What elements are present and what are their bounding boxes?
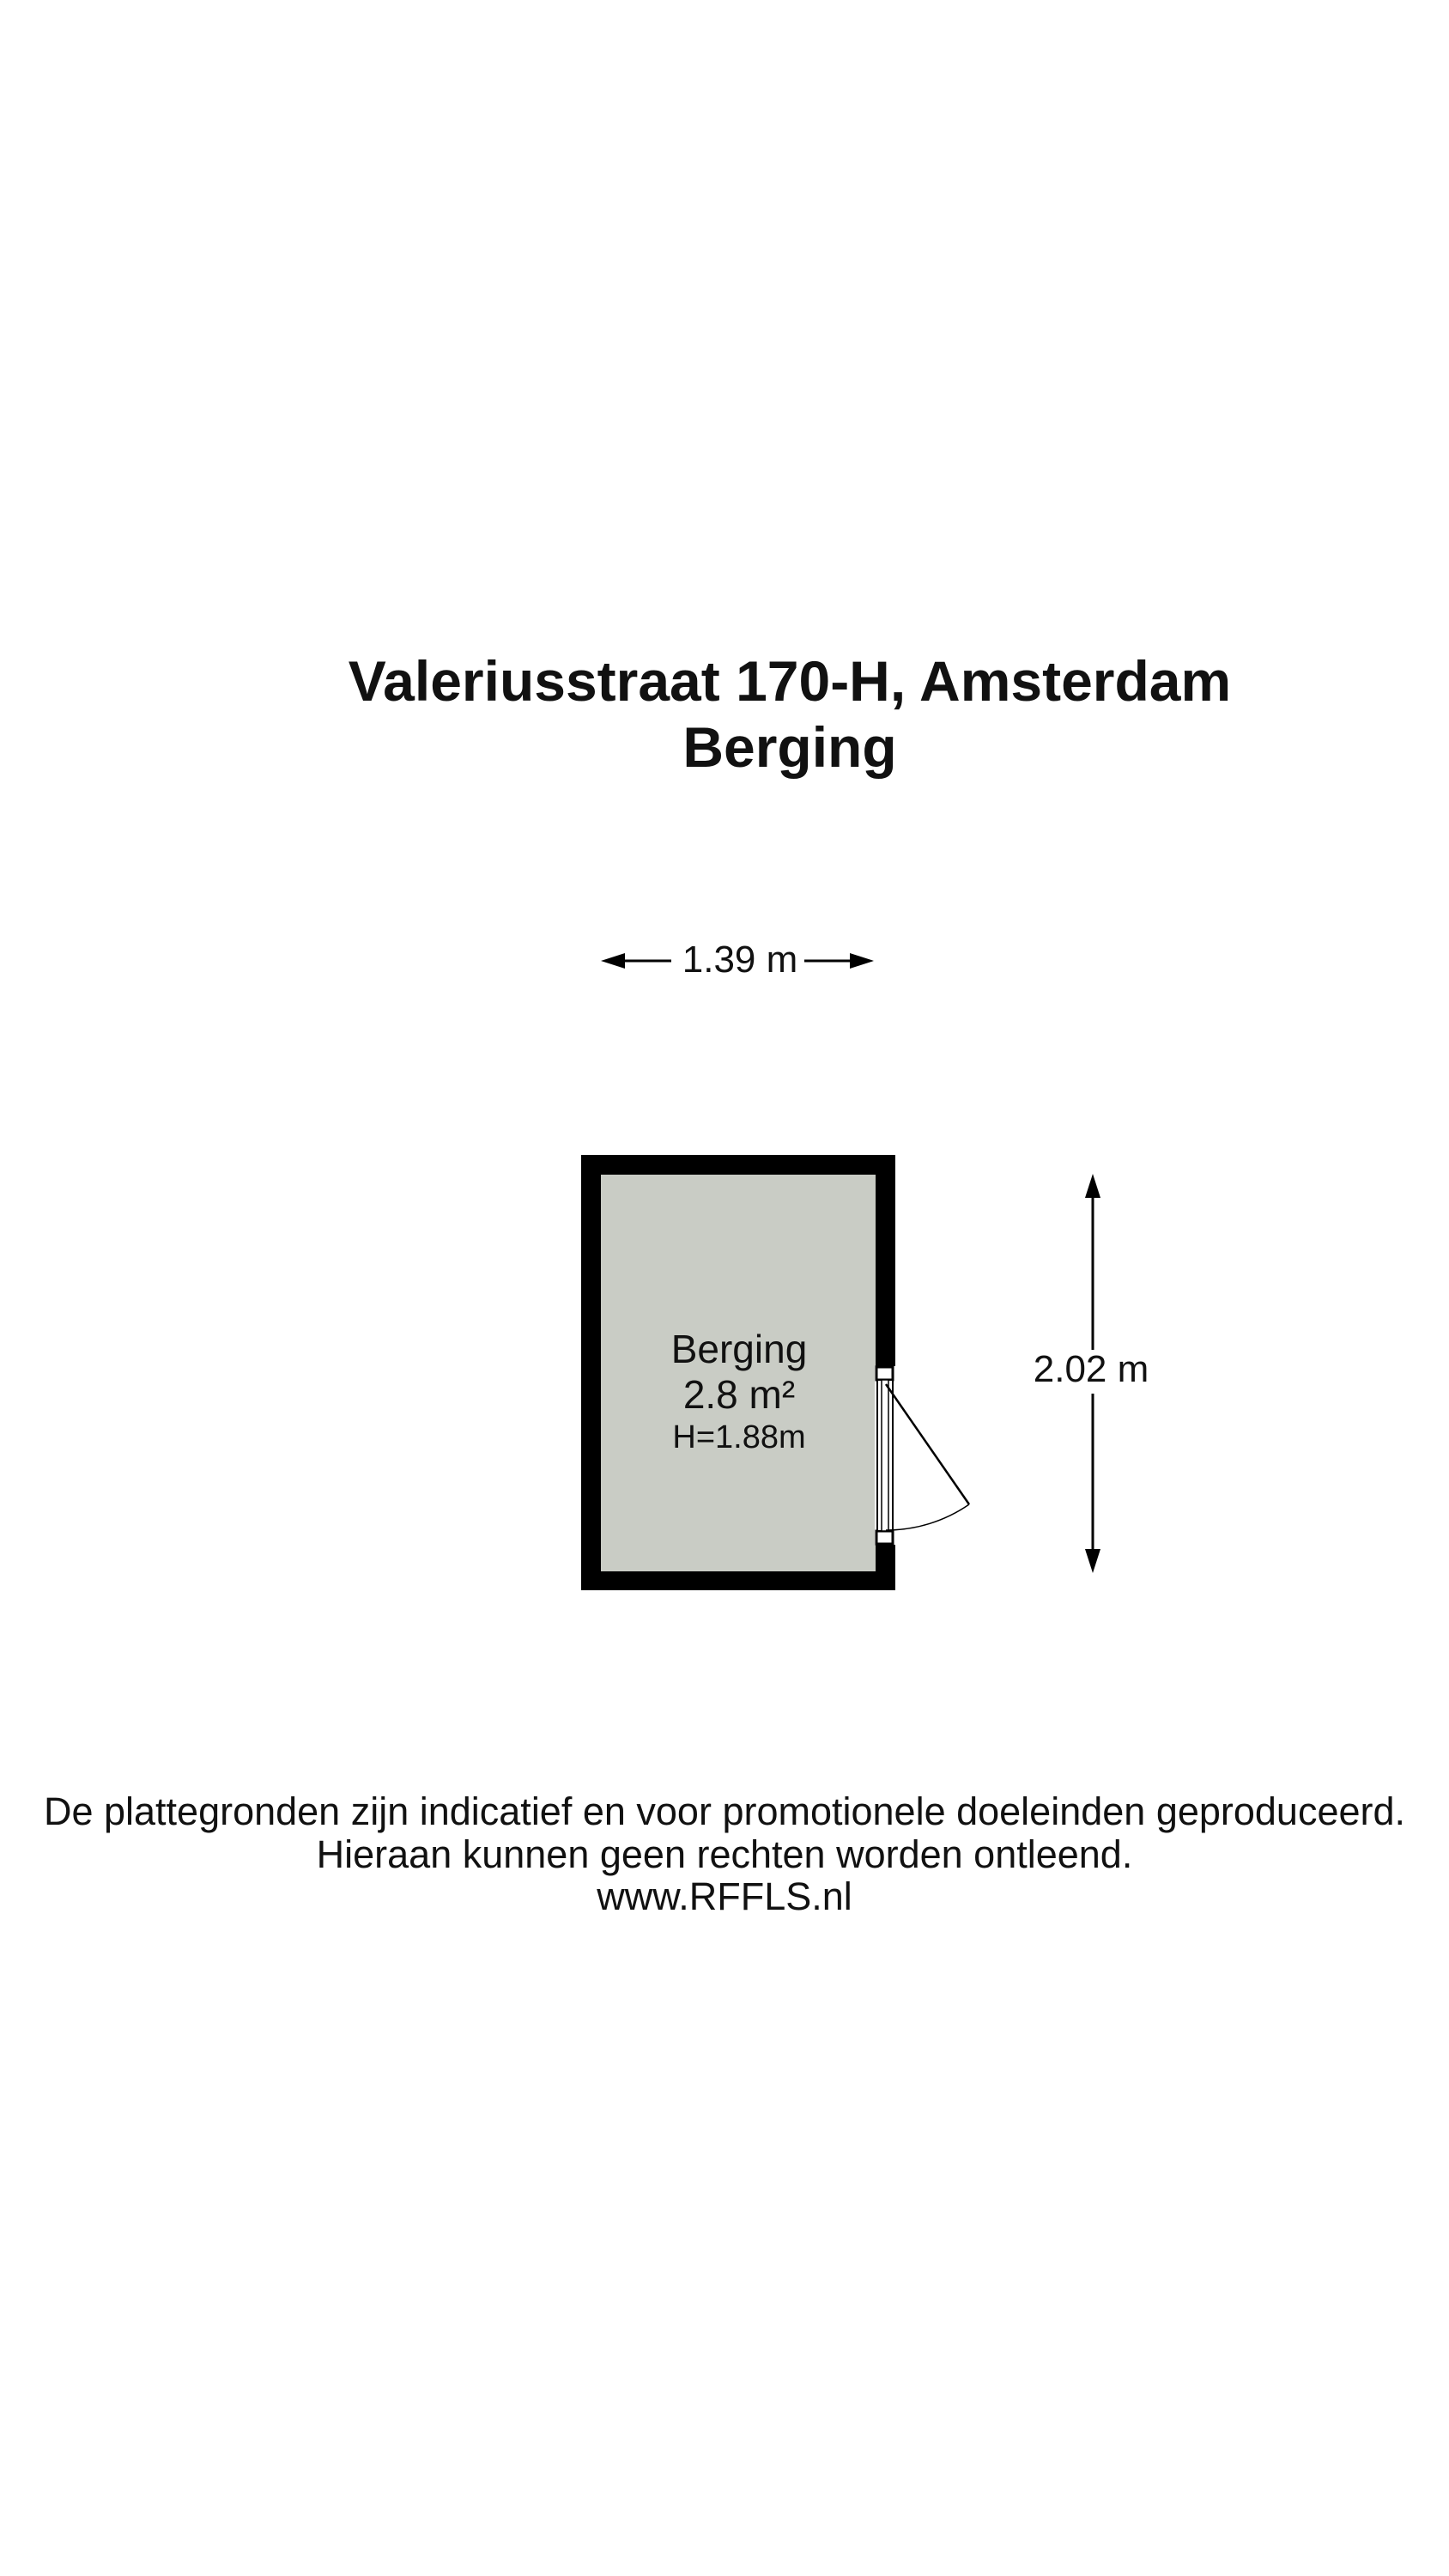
door-leaf-inner-line: [882, 1380, 888, 1531]
door-leaf-open: [886, 1384, 969, 1504]
door-jamb-bottom: [876, 1531, 893, 1544]
website-url: www.RFFLS.nl: [0, 1877, 1449, 1916]
room-area-label: 2.8 m²: [683, 1375, 795, 1414]
floorplan-page: Valeriusstraat 170-H, Amsterdam Berging: [0, 0, 1449, 2576]
arrow-right-icon: [850, 953, 874, 969]
arrow-up-icon: [1085, 1174, 1100, 1198]
room-ceiling-height-label: H=1.88m: [672, 1421, 805, 1454]
door-swing-arc: [886, 1504, 969, 1530]
height-dimension-label: 2.02 m: [1034, 1351, 1149, 1388]
width-dimension-label: 1.39 m: [682, 941, 798, 979]
arrow-down-icon: [1085, 1549, 1100, 1573]
floorplan-drawing: [0, 0, 1449, 2576]
room-name-label: Berging: [671, 1329, 808, 1369]
arrow-left-icon: [601, 953, 625, 969]
disclaimer-line-1: De plattegronden zijn indicatief en voor…: [0, 1792, 1449, 1831]
disclaimer-line-2: Hieraan kunnen geen rechten worden ontle…: [0, 1835, 1449, 1874]
door-jamb-top: [876, 1367, 893, 1380]
